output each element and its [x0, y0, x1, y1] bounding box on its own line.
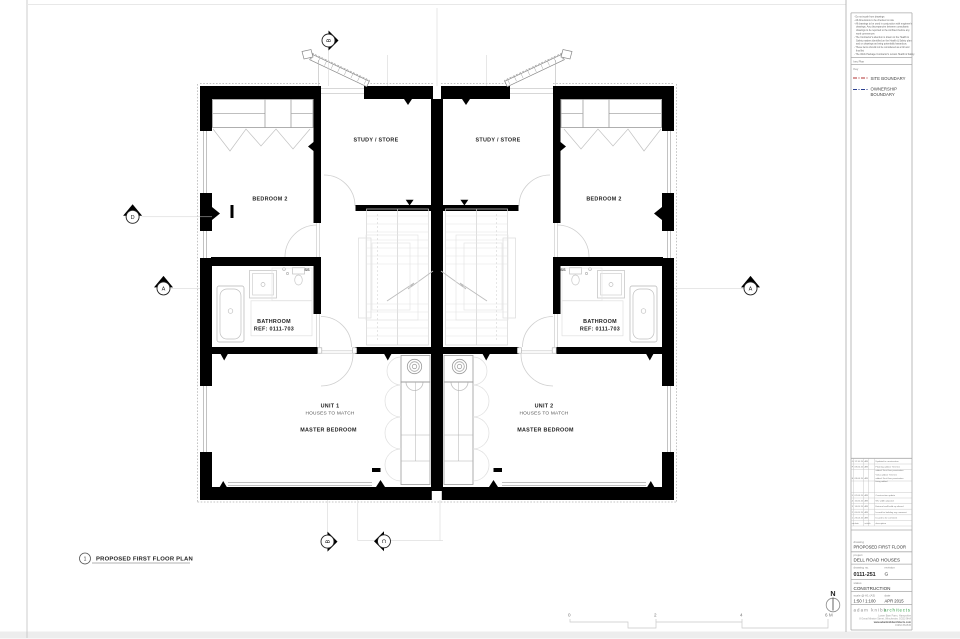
svg-text:Flashing added. Trim line: Flashing added. Trim line	[876, 466, 901, 469]
svg-text:description: description	[876, 522, 887, 525]
svg-text:status: status	[854, 581, 863, 585]
svg-text:09.06.15: 09.06.15	[855, 467, 864, 469]
svg-text:DELL ROAD HOUSES: DELL ROAD HOUSES	[854, 558, 901, 563]
svg-text:2: 2	[654, 613, 657, 618]
svg-text:G: G	[852, 461, 854, 463]
svg-text:HOUSES TO MATCH: HOUSES TO MATCH	[305, 411, 354, 417]
svg-text:23.04.15: 23.04.15	[855, 517, 864, 519]
svg-text:drawing no.: drawing no.	[854, 565, 870, 569]
svg-text:HOUSES TO MATCH: HOUSES TO MATCH	[519, 411, 568, 417]
svg-text:SITE BOUNDARY: SITE BOUNDARY	[871, 76, 906, 81]
svg-text:B: B	[326, 539, 332, 543]
svg-text:G: G	[885, 571, 889, 577]
svg-text:architects: architects	[884, 608, 911, 613]
svg-text:MASTER BEDROOM: MASTER BEDROOM	[517, 428, 574, 434]
svg-text:STUDY / STORE: STUDY / STORE	[353, 138, 398, 144]
svg-text:Construction update: Construction update	[876, 494, 896, 497]
svg-text:6 M: 6 M	[825, 613, 833, 618]
svg-text:BATHROOM: BATHROOM	[257, 319, 291, 325]
svg-text:D: D	[131, 215, 135, 221]
svg-text:0111-251: 0111-251	[854, 572, 876, 578]
svg-text:adam knibb: adam knibb	[854, 608, 888, 613]
svg-text:02.06.15: 02.06.15	[855, 495, 864, 497]
svg-text:REF: 0111-703: REF: 0111-703	[254, 326, 294, 332]
svg-text:1: 1	[84, 557, 87, 563]
svg-text:scale @ A1 (A3): scale @ A1 (A3)	[854, 593, 876, 597]
svg-text:STUDY / STORE: STUDY / STORE	[475, 138, 520, 144]
svg-text:BOUNDARY: BOUNDARY	[871, 92, 895, 97]
svg-text:key Plan: key Plan	[854, 59, 865, 63]
svg-text:CONSTRUCTION: CONSTRUCTION	[854, 586, 891, 591]
svg-text:Key: Key	[854, 67, 859, 71]
svg-text:Velux added. Trim line: Velux added. Trim line	[876, 473, 898, 476]
svg-text:OWNERSHIP: OWNERSHIP	[871, 87, 898, 92]
svg-text:UNIT 1: UNIT 1	[321, 404, 340, 410]
svg-text:APR 2015: APR 2015	[885, 598, 905, 603]
svg-text:A: A	[162, 286, 166, 292]
svg-text:C: C	[380, 539, 386, 543]
svg-text:project: project	[854, 553, 863, 557]
svg-text:REF: 0111-703: REF: 0111-703	[580, 326, 620, 332]
svg-text:initials: initials	[865, 522, 872, 525]
svg-text:Updated to construction: Updated to construction	[876, 460, 900, 463]
svg-text:date: date	[885, 593, 891, 597]
svg-text:- The Work Package Contractor: - The Work Package Contractor's remain H…	[854, 53, 915, 56]
svg-text:01962 864545: 01962 864545	[895, 624, 912, 627]
svg-text:05.05.15: 05.05.15	[855, 512, 864, 514]
svg-text:Issued for building reg commen: Issued for building reg comment	[876, 511, 908, 514]
svg-text:PROPOSED FIRST FLOOR: PROPOSED FIRST FLOOR	[854, 545, 907, 550]
svg-text:1:50 / 1:100: 1:50 / 1:100	[854, 598, 877, 603]
svg-text:added. First floor penetration: added. First floor penetration	[876, 469, 905, 472]
svg-text:A: A	[749, 286, 753, 292]
svg-text:SS: SS	[560, 267, 566, 272]
svg-text:External wall build up altered: External wall build up altered	[876, 505, 905, 508]
svg-text:added. First floor penetration: added. First floor penetration	[876, 477, 905, 480]
svg-text:15.05.15: 15.05.15	[855, 501, 864, 503]
svg-text:09.06.15: 09.06.15	[855, 478, 864, 480]
svg-text:4: 4	[740, 613, 743, 618]
svg-text:revision: revision	[885, 565, 896, 569]
svg-text:Issued to for comment: Issued to for comment	[876, 516, 898, 519]
svg-text:BATHROOM: BATHROOM	[583, 319, 617, 325]
svg-text:12.10.15: 12.10.15	[855, 461, 864, 463]
svg-text:BEDROOM 2: BEDROOM 2	[252, 197, 287, 203]
svg-text:14.05.15: 14.05.15	[855, 506, 864, 508]
svg-text:B: B	[327, 38, 333, 42]
svg-text:PROPOSED FIRST FLOOR PLAN: PROPOSED FIRST FLOOR PLAN	[96, 557, 193, 563]
svg-text:N: N	[830, 589, 835, 598]
svg-text:drawing: drawing	[854, 540, 865, 544]
svg-text:SS: SS	[304, 267, 310, 272]
svg-text:fixing added: fixing added	[876, 481, 889, 483]
svg-text:MASTER BEDROOM: MASTER BEDROOM	[300, 428, 357, 434]
svg-text:UNIT 2: UNIT 2	[535, 404, 554, 410]
svg-text:WC width adjusted: WC width adjusted	[876, 500, 895, 503]
svg-text:0: 0	[568, 613, 571, 618]
svg-text:BEDROOM 2: BEDROOM 2	[586, 197, 621, 203]
